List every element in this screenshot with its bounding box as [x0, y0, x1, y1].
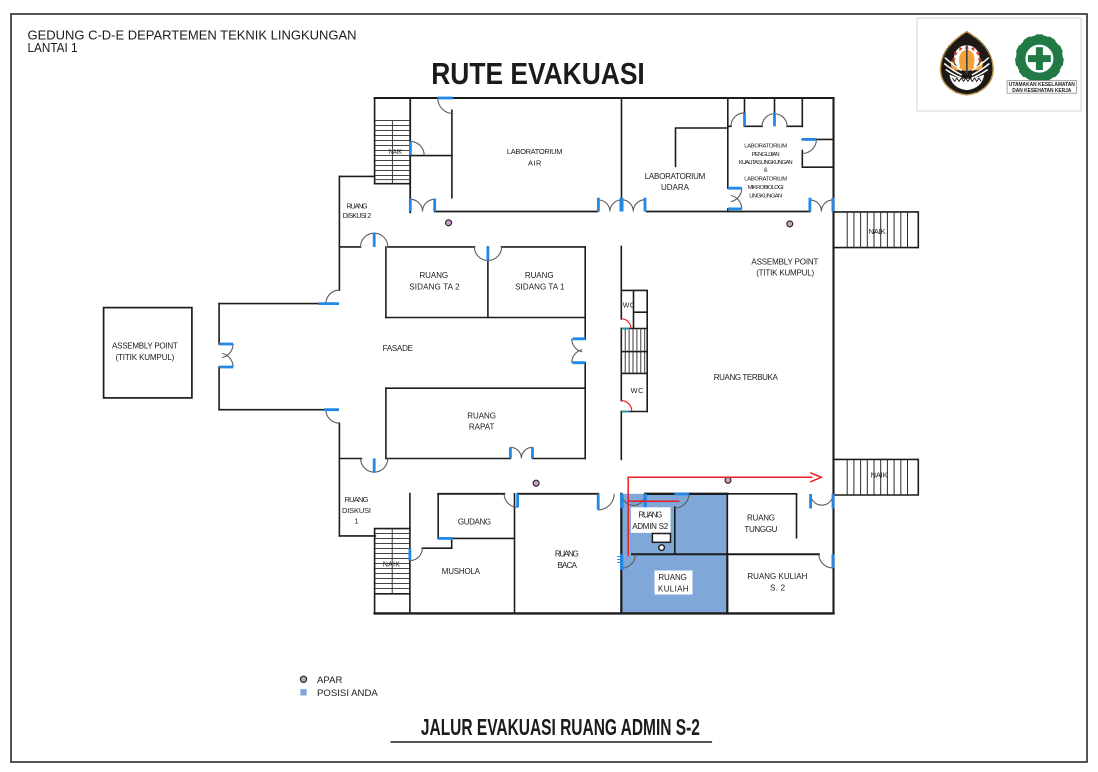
svg-text:PENGUJIAN: PENGUJIAN — [752, 152, 780, 158]
svg-text:LABORATORIUM: LABORATORIUM — [744, 144, 787, 150]
svg-text:RUANG: RUANG — [419, 271, 448, 280]
svg-text:NAIK: NAIK — [383, 561, 400, 568]
svg-text:ASSEMBLY POINT: ASSEMBLY POINT — [112, 342, 178, 351]
svg-text:DAN KESEHATAN KERJA: DAN KESEHATAN KERJA — [1012, 88, 1071, 94]
svg-text:&: & — [764, 168, 768, 174]
svg-text:RUTE EVAKUASI: RUTE EVAKUASI — [431, 56, 645, 91]
svg-text:TUNGGU: TUNGGU — [744, 525, 777, 534]
svg-text:RUANG: RUANG — [747, 514, 775, 523]
svg-text:RUANG TERBUKA: RUANG TERBUKA — [714, 373, 779, 382]
svg-text:DISKUSI: DISKUSI — [342, 506, 371, 515]
svg-text:RUANG: RUANG — [345, 495, 369, 504]
svg-text:SEMARANG: SEMARANG — [955, 89, 978, 94]
svg-text:WC: WC — [631, 386, 645, 395]
svg-text:LANTAI 1: LANTAI 1 — [28, 40, 78, 55]
svg-text:GUDANG: GUDANG — [458, 518, 491, 527]
svg-text:LABORATORIUM: LABORATORIUM — [744, 177, 787, 183]
svg-text:SIDANG TA 1: SIDANG TA 1 — [515, 282, 565, 291]
svg-text:UDARA: UDARA — [661, 183, 690, 192]
svg-text:NAIK: NAIK — [389, 149, 402, 156]
svg-text:ADMIN S2: ADMIN S2 — [632, 522, 669, 531]
svg-text:LABORATORIUM: LABORATORIUM — [507, 147, 563, 156]
svg-text:RUANG: RUANG — [555, 549, 579, 558]
svg-text:AIR: AIR — [528, 159, 542, 168]
svg-text:RAPAT: RAPAT — [469, 423, 495, 432]
svg-text:KUALITAS LINGKUNGAN: KUALITAS LINGKUNGAN — [739, 160, 793, 166]
svg-text:MUSHOLA: MUSHOLA — [442, 567, 481, 576]
svg-text:ASSEMBLY POINT: ASSEMBLY POINT — [751, 258, 818, 267]
svg-text:KULIAH: KULIAH — [658, 584, 689, 593]
svg-text:APAR: APAR — [317, 675, 342, 686]
svg-text:LINGKUNGAN: LINGKUNGAN — [749, 194, 782, 200]
svg-text:JALUR EVAKUASI RUANG ADMIN S-2: JALUR EVAKUASI RUANG ADMIN S-2 — [421, 714, 700, 740]
svg-text:NAIK: NAIK — [871, 471, 888, 480]
svg-text:FASADE: FASADE — [383, 344, 413, 353]
svg-text:BACA: BACA — [557, 561, 577, 570]
svg-text:POSISI ANDA: POSISI ANDA — [317, 688, 378, 699]
svg-text:1: 1 — [354, 516, 358, 525]
svg-text:DISKUSI 2: DISKUSI 2 — [343, 213, 371, 220]
svg-text:RUANG KULIAH: RUANG KULIAH — [747, 572, 807, 581]
svg-text:(TITIK KUMPUL): (TITIK KUMPUL) — [115, 353, 174, 362]
svg-text:RUANG: RUANG — [638, 511, 662, 520]
svg-text:RUANG: RUANG — [525, 271, 554, 280]
svg-text:RUANG: RUANG — [658, 573, 687, 582]
svg-text:NAIK: NAIK — [869, 227, 886, 236]
svg-text:LABORATORIUM: LABORATORIUM — [645, 172, 706, 181]
svg-text:RUANG: RUANG — [347, 204, 368, 211]
svg-text:SIDANG TA 2: SIDANG TA 2 — [409, 282, 460, 291]
svg-text:RUANG: RUANG — [467, 411, 496, 420]
svg-text:S. 2: S. 2 — [770, 583, 786, 592]
svg-text:(TITIK KUMPUL): (TITIK KUMPUL) — [756, 269, 814, 278]
svg-text:MIKROBIOLOGI: MIKROBIOLOGI — [748, 185, 784, 191]
svg-text:WC: WC — [623, 303, 635, 310]
